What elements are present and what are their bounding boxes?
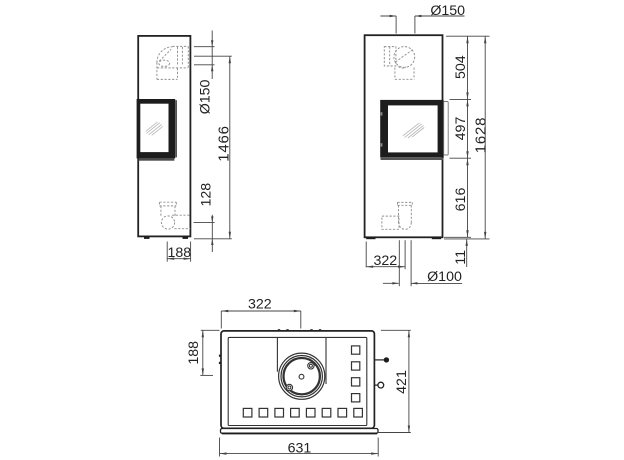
svg-text:322: 322 <box>248 297 272 313</box>
svg-text:188: 188 <box>167 245 191 261</box>
svg-text:504: 504 <box>453 55 469 79</box>
svg-text:Ø150: Ø150 <box>197 79 213 114</box>
svg-text:128: 128 <box>199 183 215 207</box>
svg-text:1628: 1628 <box>473 117 490 154</box>
svg-text:322: 322 <box>373 253 397 269</box>
svg-text:421: 421 <box>394 370 410 394</box>
svg-text:616: 616 <box>453 188 469 212</box>
svg-text:631: 631 <box>288 440 312 456</box>
svg-text:Ø100: Ø100 <box>427 269 462 285</box>
svg-text:188: 188 <box>186 341 202 365</box>
svg-text:11: 11 <box>453 250 469 265</box>
svg-text:Ø150: Ø150 <box>430 3 465 19</box>
svg-text:1466: 1466 <box>216 125 233 162</box>
svg-text:497: 497 <box>453 117 469 141</box>
